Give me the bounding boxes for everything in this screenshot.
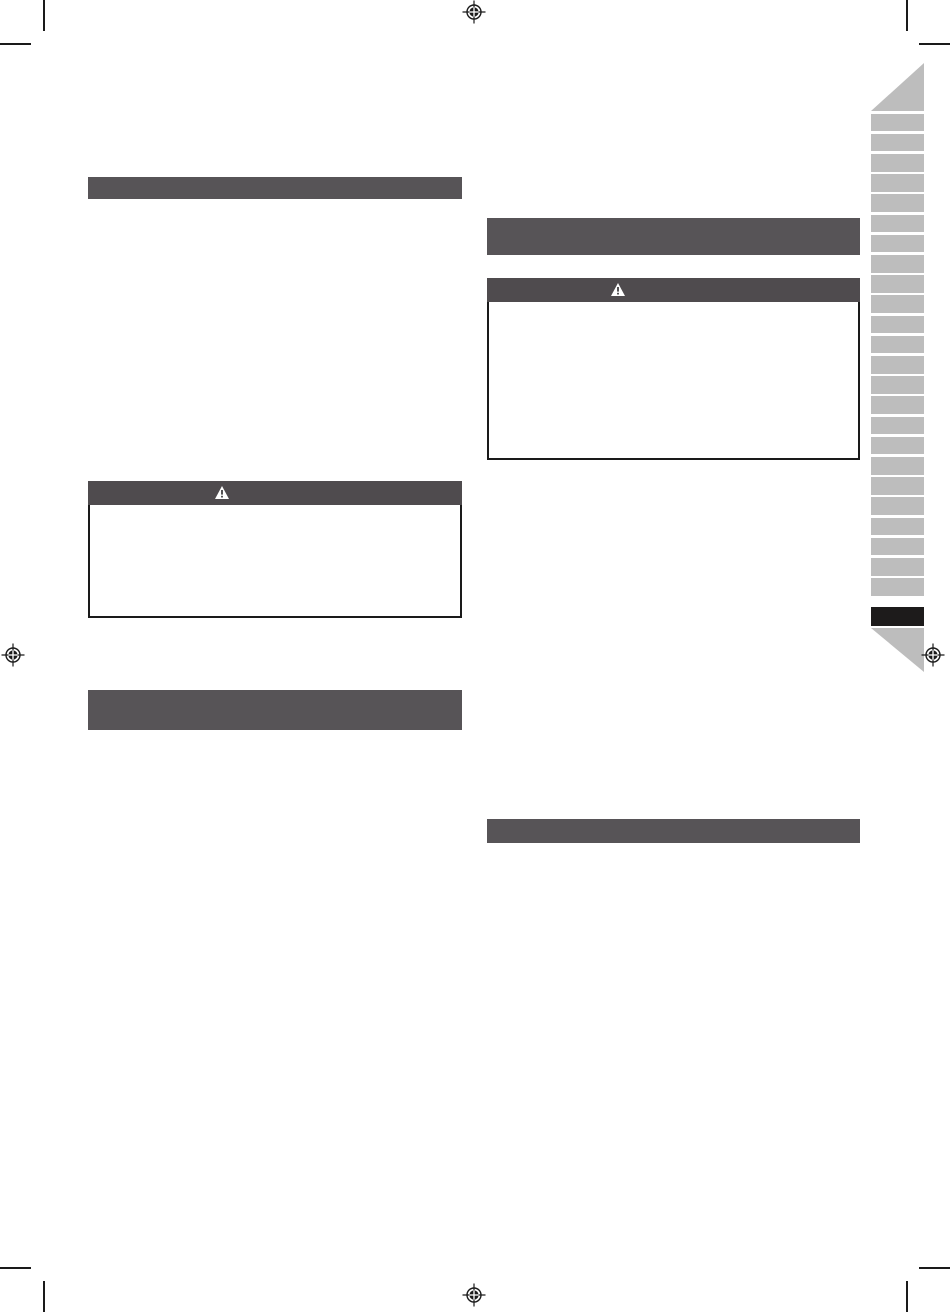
thumb-tab <box>871 154 924 172</box>
thumb-tab <box>871 457 924 475</box>
thumb-tab <box>871 194 924 212</box>
warning-box-body <box>88 505 462 618</box>
section-header-bar <box>88 177 462 199</box>
warning-triangle-icon <box>215 486 229 499</box>
thumb-tab <box>871 316 924 334</box>
registration-mark-right-middle <box>921 643 945 667</box>
registration-mark-left-middle <box>1 643 25 667</box>
thumb-tab <box>871 356 924 374</box>
tab-strip-bottom-ramp-triangle <box>871 628 924 672</box>
thumb-tab-active <box>871 607 924 626</box>
thumb-tab <box>871 578 924 596</box>
manual-page <box>0 0 950 1312</box>
thumb-tab <box>871 417 924 435</box>
thumb-tab <box>871 336 924 354</box>
section-header-bar <box>487 819 860 843</box>
warning-box-header <box>487 278 860 302</box>
thumb-tab <box>871 558 924 576</box>
registration-mark-top-center <box>462 0 486 24</box>
warning-box <box>487 278 860 460</box>
section-header-bar <box>88 690 462 730</box>
thumb-tab <box>871 235 924 253</box>
thumb-tab <box>871 114 924 132</box>
thumb-tab <box>871 295 924 313</box>
warning-box-body <box>487 302 860 460</box>
section-header-bar <box>487 218 860 255</box>
thumb-tab <box>871 215 924 233</box>
thumb-tab <box>871 376 924 394</box>
thumb-tab-strip <box>871 0 924 700</box>
thumb-tab <box>871 275 924 293</box>
tab-strip-top-ramp-triangle <box>871 63 924 111</box>
thumb-tab <box>871 518 924 536</box>
thumb-tab <box>871 497 924 515</box>
thumb-tab <box>871 538 924 556</box>
thumb-tab <box>871 437 924 455</box>
warning-box-header <box>88 481 462 505</box>
crop-mark-top-left-horizontal <box>0 43 31 45</box>
thumb-tab <box>871 477 924 495</box>
crop-mark-bottom-right-horizontal <box>919 1267 950 1269</box>
thumb-tab <box>871 174 924 192</box>
crop-mark-bottom-left-vertical <box>43 1281 45 1312</box>
crop-mark-bottom-right-vertical <box>906 1281 908 1312</box>
thumb-tab <box>871 396 924 414</box>
warning-box <box>88 481 462 618</box>
crop-mark-bottom-left-horizontal <box>0 1267 31 1269</box>
crop-mark-top-left-vertical <box>43 0 45 31</box>
thumb-tab <box>871 255 924 273</box>
registration-mark-bottom-center <box>462 1283 486 1307</box>
thumb-tab <box>871 134 924 152</box>
warning-triangle-icon <box>611 283 625 296</box>
